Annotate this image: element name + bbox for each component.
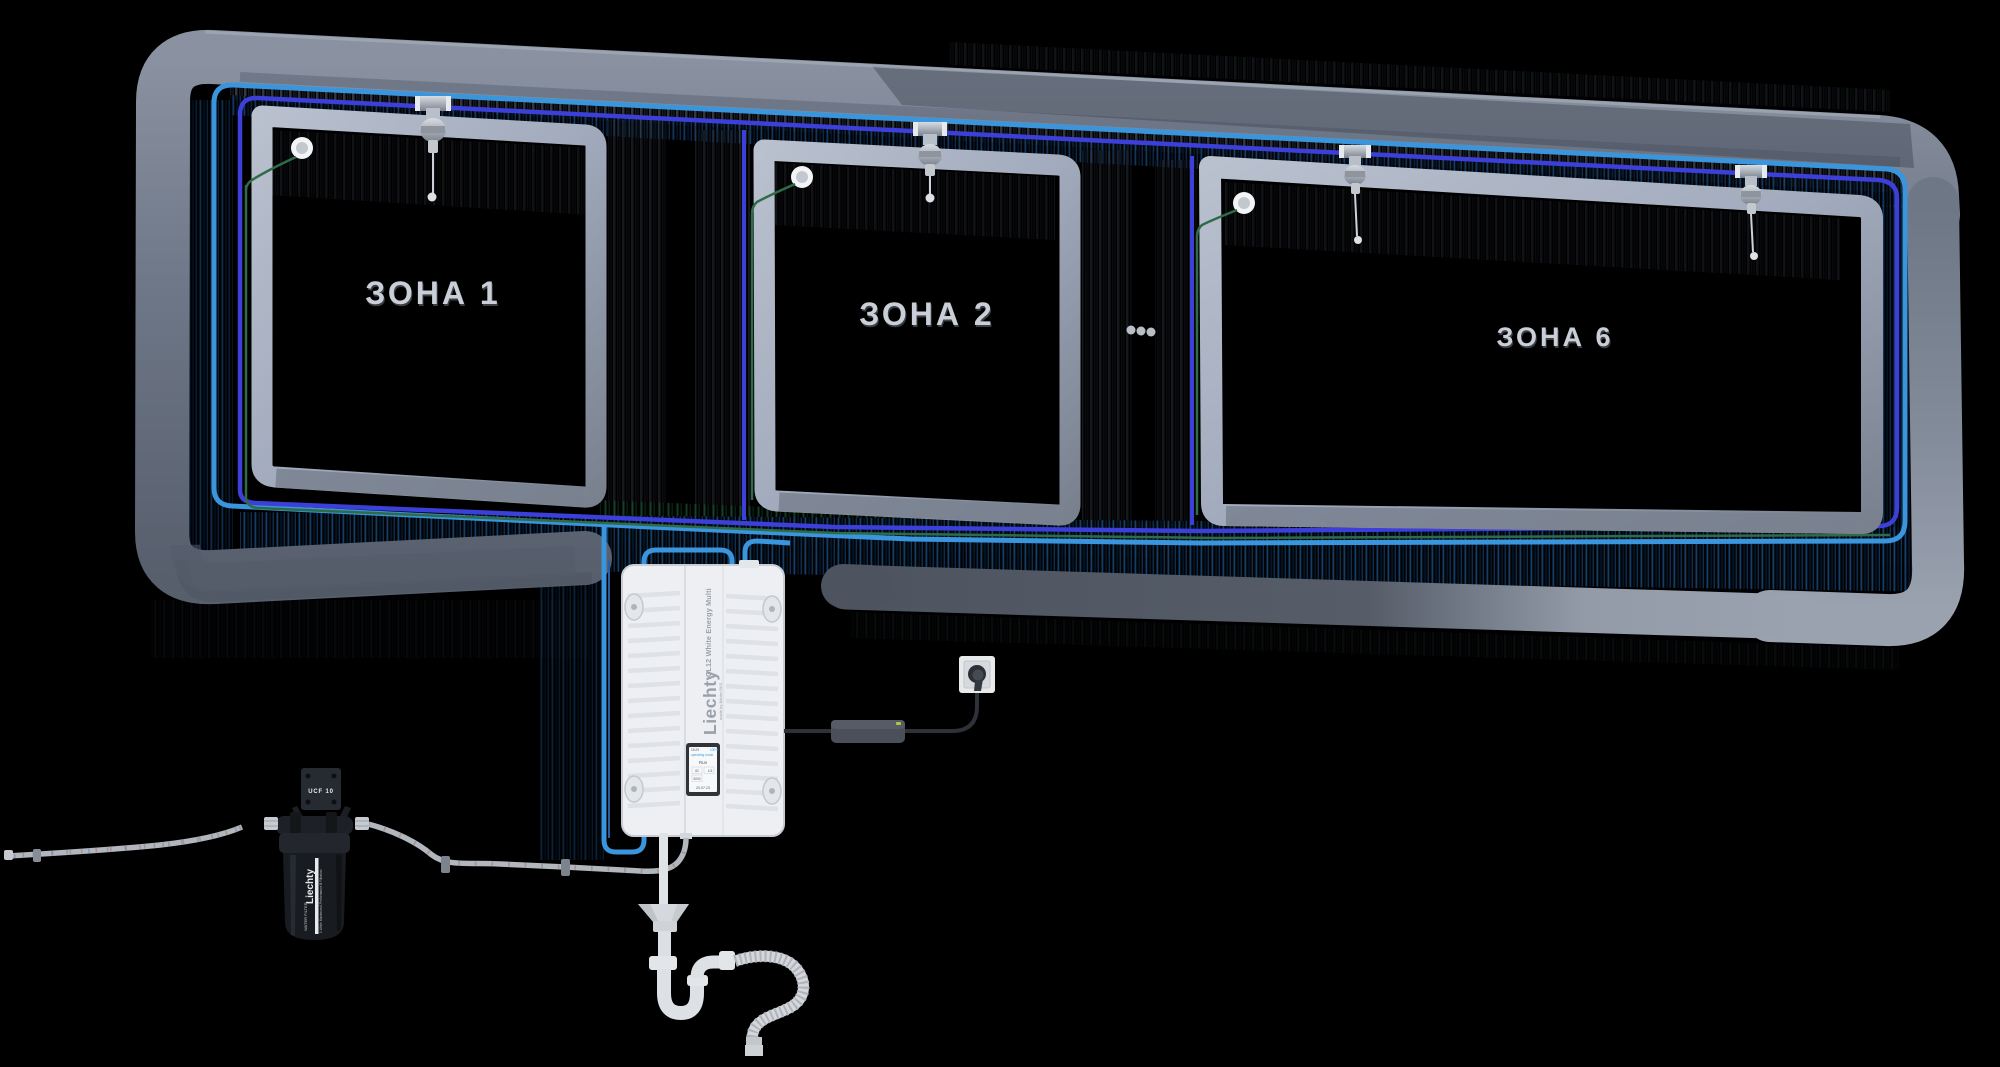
svg-text:operating mode: operating mode — [691, 753, 713, 757]
svg-text:CL12 White Energy Multi: CL12 White Energy Multi — [704, 588, 713, 677]
svg-text:UCF 10: UCF 10 — [308, 789, 333, 795]
svg-text:100%: 100% — [710, 748, 718, 752]
svg-text:made by Bühler RKS: made by Bühler RKS — [718, 682, 723, 720]
svg-text:WATER FILTER: WATER FILTER — [303, 902, 308, 931]
svg-text:ЗОНА 2: ЗОНА 2 — [859, 296, 994, 332]
svg-text:5000: 5000 — [693, 777, 700, 781]
svg-text:Liechty: Liechty — [305, 869, 316, 904]
svg-text:20.07.23: 20.07.23 — [696, 786, 710, 790]
svg-text:Run: Run — [699, 760, 708, 765]
svg-text:82: 82 — [695, 769, 699, 773]
svg-text:Liechty: Liechty — [700, 670, 720, 735]
svg-text:1 White Maximum A Performanc: 1 White Maximum A Performance B Filtrati… — [319, 869, 323, 933]
svg-text:4.5: 4.5 — [708, 769, 713, 773]
svg-text:ЗОНА 1: ЗОНА 1 — [365, 275, 500, 311]
svg-text:15:29: 15:29 — [691, 748, 699, 752]
svg-text:ЗОНА 6: ЗОНА 6 — [1496, 322, 1613, 352]
